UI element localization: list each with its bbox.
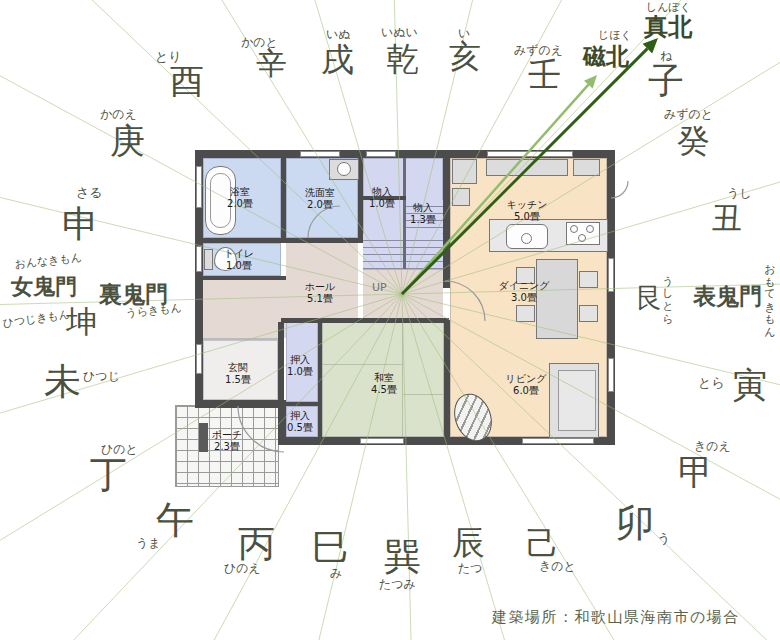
room-label-リビング: リビング6.0畳 [506,373,547,396]
room-label-浴室: 浴室2.0畳 [227,186,253,209]
window-marker [522,438,594,444]
washbasin-bowl [337,162,351,176]
direction-label-子: 子 [648,63,684,99]
room-label-キッチン: キッチン5.0畳 [507,199,548,222]
direction-label-辛: 辛 [256,48,287,79]
stove-burner [570,225,578,233]
sofa-cushions [558,370,596,431]
room-label-ホール: ホール5.1畳 [305,281,335,304]
magnetic-north-label: 磁北 [583,44,629,67]
window-marker [196,246,202,272]
wall-segment [607,150,615,445]
direction-label-巽: 巽 [384,538,421,575]
porch-step [199,423,208,452]
direction-furigana-坤: ひつじきもん [2,309,70,329]
wall-segment [281,153,286,240]
direction-furigana-寅: とら [698,376,725,389]
direction-furigana-未: ひつじ [83,370,120,382]
direction-furigana-酉: とり [155,50,182,63]
direction-furigana-庚: かのえ [100,108,137,120]
window-marker [608,358,614,392]
room-hall-upper [286,240,358,318]
dining-chair [579,271,598,288]
direction-label-坤: 坤 [66,306,97,337]
wall-segment [318,322,322,438]
direction-label-丑: 丑 [711,203,742,234]
direction-furigana-表鬼門: おもてきもん [764,256,775,331]
direction-label-酉: 酉 [170,64,204,98]
direction-label-表鬼門: 表鬼門 [693,284,762,307]
direction-furigana-丁: ひのと [101,443,138,455]
stairs-up-label: UP [372,281,387,294]
direction-label-女鬼門: 女鬼門 [11,275,77,297]
tatami-line [322,364,402,365]
dining-chair [516,305,535,322]
direction-furigana-丙: ひのえ [224,562,261,574]
kitchen-cabinet [486,159,568,176]
direction-label-庚: 庚 [110,124,145,159]
direction-label-寅: 寅 [732,368,767,403]
window-marker [196,344,202,374]
direction-label-未: 未 [44,363,81,400]
window-marker [608,258,614,292]
sink-drain [521,233,532,244]
room-label-ポーチ: ポーチ2.3畳 [212,429,242,452]
window-marker [366,151,396,157]
direction-furigana-女鬼門: おんなきもん [14,252,82,270]
stove-burner [578,234,586,242]
direction-furigana-乾: いぬい [381,26,418,38]
direction-furigana-癸: みずのと [664,108,713,120]
room-label-玄関: 玄関1.5畳 [225,362,251,385]
room-label-押入: 押入0.5畳 [287,410,313,433]
cabinet-icon [452,188,470,206]
direction-label-卯: 卯 [616,504,654,542]
stove-burner [586,225,594,233]
direction-furigana-壬: みずのえ [514,44,563,56]
direction-furigana-亥: い [458,27,470,39]
direction-label-丁: 丁 [90,456,127,493]
direction-label-午: 午 [156,501,194,539]
room-hall-left [203,280,286,338]
direction-furigana-丑: うし [727,187,752,199]
window-marker [360,438,404,444]
caption-building-location: 建築場所：和歌山県海南市の場合 [492,608,740,627]
direction-furigana-巳: み [330,567,342,579]
room-label-洗面室: 洗面室2.0畳 [305,187,335,210]
tatami-line [402,394,444,395]
magnetic-north-furigana: じほく [598,30,632,41]
wall-segment [278,322,284,402]
direction-furigana-戌: いぬ [326,28,351,40]
direction-furigana-己: きのと [539,560,576,572]
wall-segment [443,150,450,288]
direction-label-戌: 戌 [321,43,354,76]
true-north-furigana: しんぼく [646,2,691,13]
window-marker [487,151,573,157]
refrigerator-icon [452,159,477,184]
wall-segment [197,238,363,243]
room-hall-under-stairs [363,270,443,318]
kaso-floor-plan-diagram: 浴室2.0畳洗面室2.0畳物入1.0畳物入1.3畳トイレ1.0畳ホール5.1畳キ… [0,0,780,640]
wall-segment [444,320,450,438]
wall-segment [281,402,320,406]
wall-segment [281,318,449,323]
direction-label-癸: 癸 [677,124,710,157]
direction-label-丙: 丙 [238,525,275,562]
direction-label-巳: 巳 [312,529,349,566]
direction-furigana-巽: たつみ [379,578,416,590]
window-marker [300,151,340,157]
dining-chair [579,305,598,322]
magnetic-north-arrow-head [584,75,597,89]
room-label-和室: 和室4.5畳 [371,372,397,395]
direction-label-裏鬼門: 裏鬼門 [99,282,168,305]
direction-label-艮: 艮 [636,284,663,311]
true-north-label: 真北 [644,15,692,39]
window-marker [196,166,202,208]
toilet-tank [204,249,213,270]
wall-segment [197,276,286,280]
wall-segment [278,400,286,445]
direction-label-亥: 亥 [449,40,481,72]
room-label-トイレ: トイレ1.0畳 [224,248,255,271]
direction-label-甲: 甲 [678,455,713,490]
room-label-ダイニング: ダイニング3.0畳 [498,280,549,303]
direction-furigana-甲: きのえ [694,440,731,452]
direction-furigana-申: さる [76,186,103,199]
tatami-line [402,322,403,437]
room-label-物入: 物入1.3畳 [410,202,436,225]
direction-label-壬: 壬 [528,58,561,91]
direction-furigana-辛: かのと [241,36,278,48]
kitchen-cabinet [573,159,600,176]
room-label-物入: 物入1.0畳 [369,186,395,209]
direction-furigana-卯: う [657,532,670,545]
direction-label-辰: 辰 [452,526,485,559]
direction-furigana-子: ね [660,50,672,62]
entrance-step-line [197,338,281,340]
wall-segment [195,400,286,408]
direction-furigana-午: うま [136,537,161,549]
direction-furigana-辰: たつ [458,562,483,574]
room-label-押入: 押入1.0畳 [287,354,313,377]
direction-furigana-艮: うしとら [662,268,673,318]
direction-label-申: 申 [62,206,99,243]
direction-label-乾: 乾 [386,42,419,75]
stair-divider [403,157,406,269]
direction-label-己: 己 [526,527,559,560]
